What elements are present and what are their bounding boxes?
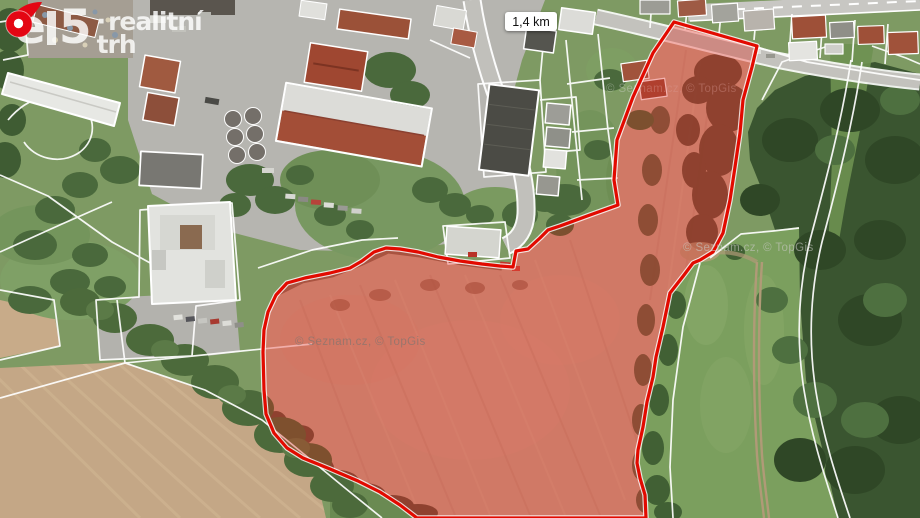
logo-letter-five: 5: [59, 4, 90, 52]
watermark-right: © Seznam.cz, © TopGis: [683, 242, 814, 254]
map-viewport[interactable]: © Seznam.cz, © TopGis © Seznam.cz, © Top…: [0, 0, 920, 518]
aerial-map[interactable]: © Seznam.cz, © TopGis © Seznam.cz, © Top…: [0, 0, 920, 518]
office-building: [148, 202, 236, 304]
hip-roof-building: [304, 43, 368, 92]
logo-line2: trh: [97, 33, 202, 56]
location-pin-icon[interactable]: [0, 0, 48, 46]
watermark-left: © Seznam.cz, © TopGis: [295, 336, 426, 348]
logo-bar: [47, 11, 56, 45]
gray-hall-building: [139, 151, 203, 188]
dark-roof-building: [479, 84, 539, 175]
distance-badge: 1,4 km: [505, 12, 557, 31]
